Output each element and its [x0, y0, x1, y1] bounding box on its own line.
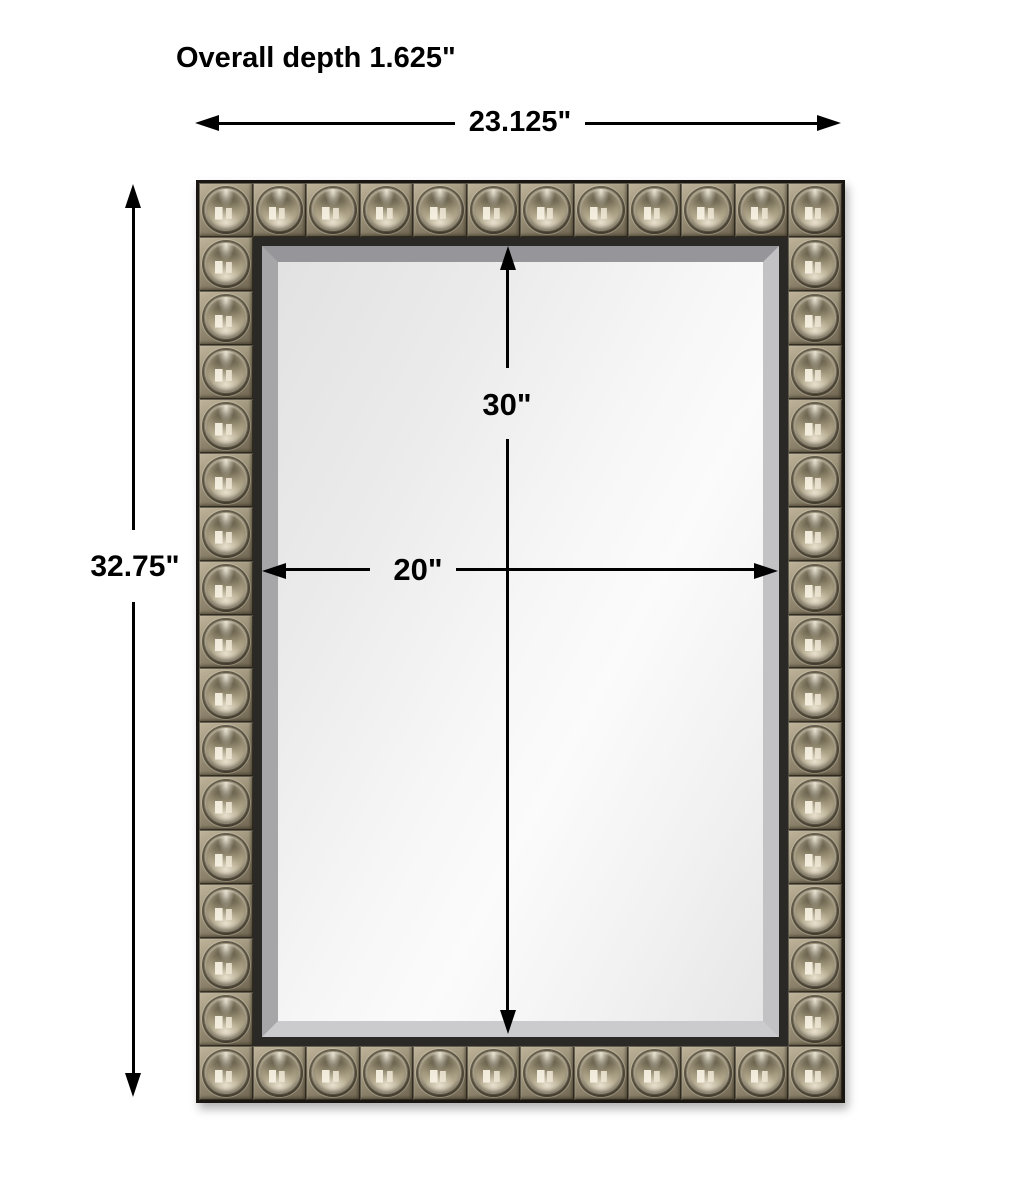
- bead-dome: [312, 1052, 354, 1094]
- bead-dome: [687, 189, 729, 231]
- frame-bead-tile: [788, 830, 842, 884]
- frame-bead-tile: [628, 183, 682, 237]
- arrowhead-right-icon: [754, 563, 778, 579]
- frame-bead-tile: [788, 561, 842, 615]
- mirror-bevel: [262, 246, 779, 1037]
- mirror-glass: [278, 262, 763, 1021]
- frame-bead-tile: [788, 776, 842, 830]
- frame-bead-tile: [788, 345, 842, 399]
- bead-dome: [634, 189, 676, 231]
- frame-bead-tile: [788, 237, 842, 291]
- dimension-line: [282, 568, 370, 571]
- frame-bead-tile: [788, 453, 842, 507]
- frame-bead-tile: [520, 183, 574, 237]
- frame-bead-tile: [788, 938, 842, 992]
- frame-bead-tile: [199, 291, 253, 345]
- frame-bead-tile: [199, 507, 253, 561]
- bead-dome: [205, 189, 247, 231]
- bead-dome: [205, 782, 247, 824]
- frame-bead-tile: [199, 668, 253, 722]
- arrowhead-down-icon: [500, 1010, 516, 1034]
- bead-dome: [205, 674, 247, 716]
- bead-dome: [205, 944, 247, 986]
- frame-bead-tile: [788, 507, 842, 561]
- bead-dome: [794, 674, 836, 716]
- dimension-line: [216, 122, 455, 125]
- mirror-product-image: [196, 180, 845, 1103]
- frame-bead-tile: [788, 668, 842, 722]
- bead-dome: [473, 189, 515, 231]
- frame-bead-tile: [199, 830, 253, 884]
- frame-bead-tile: [199, 183, 253, 237]
- bead-dome: [205, 243, 247, 285]
- frame-bead-tile: [253, 183, 307, 237]
- bead-dome: [687, 1052, 729, 1094]
- bead-dome: [205, 728, 247, 770]
- frame-bead-tile: [788, 884, 842, 938]
- bead-dome: [794, 782, 836, 824]
- frame-bead-tile: [467, 1046, 521, 1100]
- bead-dome: [794, 297, 836, 339]
- bead-dome: [205, 297, 247, 339]
- frame-bead-tile: [413, 183, 467, 237]
- frame-bead-tile: [788, 992, 842, 1046]
- frame-bead-tile: [681, 183, 735, 237]
- frame-bead-tile: [360, 1046, 414, 1100]
- bead-dome: [794, 567, 836, 609]
- dimension-line: [506, 266, 509, 368]
- bead-dome: [205, 513, 247, 555]
- mirror-width-label: 20": [378, 552, 458, 588]
- bead-dome: [794, 836, 836, 878]
- bead-dome: [794, 1052, 836, 1094]
- bead-dome: [794, 351, 836, 393]
- frame-bead-tile: [467, 183, 521, 237]
- frame-bead-tile: [199, 399, 253, 453]
- bead-dome: [794, 405, 836, 447]
- dimension-line: [585, 122, 818, 125]
- arrowhead-down-icon: [125, 1073, 141, 1097]
- frame-bead-tile: [788, 399, 842, 453]
- overall-depth-label: Overall depth 1.625": [176, 42, 456, 75]
- arrowhead-left-icon: [262, 563, 286, 579]
- bead-dome: [473, 1052, 515, 1094]
- frame-bead-tile: [199, 453, 253, 507]
- bead-dome: [205, 1052, 247, 1094]
- frame-bead-tile: [306, 183, 360, 237]
- frame-bead-tile: [199, 992, 253, 1046]
- frame-bead-tile: [574, 183, 628, 237]
- frame-bead-tile: [199, 615, 253, 669]
- bead-dome: [634, 1052, 676, 1094]
- bead-dome: [794, 243, 836, 285]
- bead-dome: [794, 189, 836, 231]
- bead-dome: [580, 189, 622, 231]
- frame-bead-tile: [788, 722, 842, 776]
- bead-dome: [794, 621, 836, 663]
- bead-dome: [205, 998, 247, 1040]
- frame-bead-tile: [199, 884, 253, 938]
- frame-bead-tile: [735, 183, 789, 237]
- bead-dome: [205, 405, 247, 447]
- bead-dome: [205, 567, 247, 609]
- mirror-height-label: 30": [457, 387, 557, 423]
- arrowhead-up-icon: [125, 184, 141, 208]
- frame-bead-tile: [253, 1046, 307, 1100]
- bead-dome: [312, 189, 354, 231]
- dimension-line: [132, 602, 135, 1075]
- frame-bead-tile: [681, 1046, 735, 1100]
- bead-dome: [794, 998, 836, 1040]
- bead-dome: [205, 836, 247, 878]
- bead-dome: [205, 621, 247, 663]
- bead-dome: [794, 513, 836, 555]
- bead-dome: [419, 189, 461, 231]
- mirror-inner-lip: [253, 237, 788, 1046]
- bead-dome: [205, 459, 247, 501]
- frame-bead-tile: [199, 1046, 253, 1100]
- bead-dome: [580, 1052, 622, 1094]
- frame-bead-tile: [520, 1046, 574, 1100]
- bead-dome: [366, 189, 408, 231]
- overall-height-label: 32.75": [75, 550, 195, 584]
- dimension-line: [456, 568, 756, 571]
- frame-bead-tile: [199, 561, 253, 615]
- frame-bead-tile: [788, 615, 842, 669]
- bead-dome: [526, 1052, 568, 1094]
- frame-bead-tile: [788, 1046, 842, 1100]
- bead-dome: [741, 189, 783, 231]
- bead-dome: [259, 1052, 301, 1094]
- arrowhead-right-icon: [817, 115, 841, 131]
- frame-bead-tile: [413, 1046, 467, 1100]
- dimension-line: [506, 439, 509, 1012]
- bead-dome: [259, 189, 301, 231]
- bead-dome: [794, 459, 836, 501]
- frame-bead-tile: [360, 183, 414, 237]
- frame-bead-tile: [199, 237, 253, 291]
- bead-dome: [205, 351, 247, 393]
- frame-bead-tile: [574, 1046, 628, 1100]
- frame-bead-tile: [788, 183, 842, 237]
- bead-dome: [794, 728, 836, 770]
- product-dimension-diagram: Overall depth 1.625" 23.125" 32.75" 30": [0, 0, 1013, 1200]
- bead-dome: [366, 1052, 408, 1094]
- bead-dome: [419, 1052, 461, 1094]
- frame-bead-tile: [199, 345, 253, 399]
- bead-dome: [794, 890, 836, 932]
- overall-width-label: 23.125": [455, 106, 585, 139]
- frame-bead-tile: [199, 938, 253, 992]
- frame-bead-tile: [199, 776, 253, 830]
- bead-dome: [526, 189, 568, 231]
- frame-bead-tile: [306, 1046, 360, 1100]
- frame-bead-tile: [628, 1046, 682, 1100]
- frame-bead-tile: [199, 722, 253, 776]
- frame-bead-tile: [735, 1046, 789, 1100]
- bead-dome: [794, 944, 836, 986]
- bead-dome: [741, 1052, 783, 1094]
- dimension-line: [132, 206, 135, 530]
- bead-dome: [205, 890, 247, 932]
- frame-bead-tile: [788, 291, 842, 345]
